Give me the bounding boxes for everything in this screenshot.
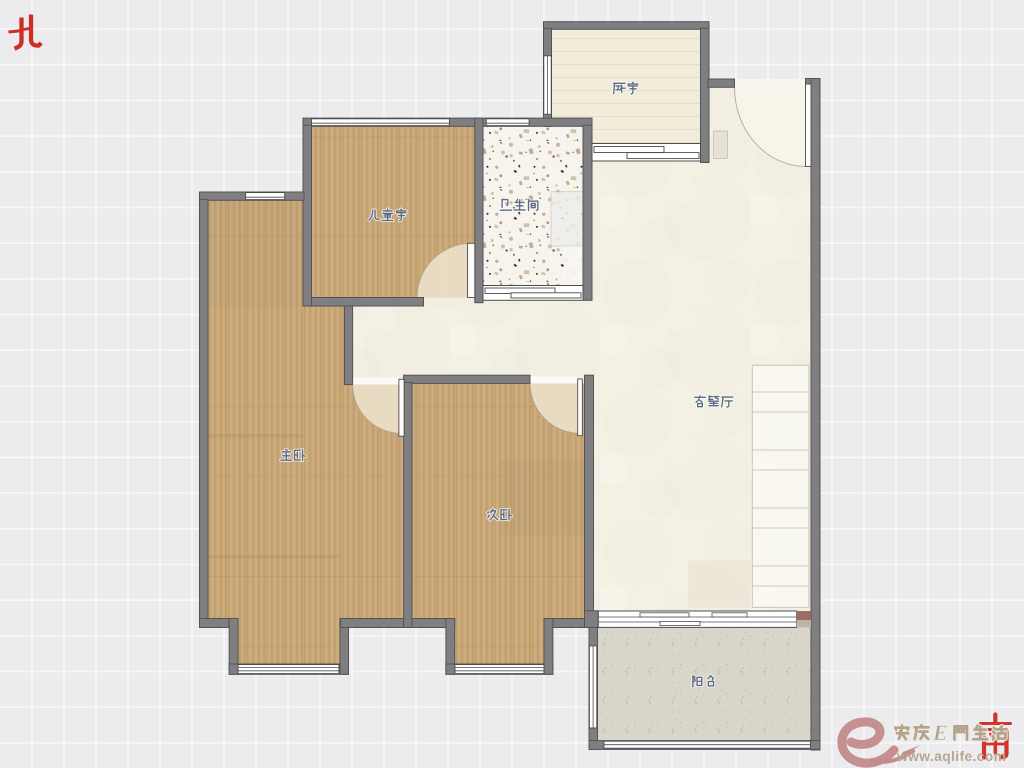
svg-text:E: E [932,720,948,745]
svg-text:www.aqlife.com: www.aqlife.com [896,749,1006,764]
